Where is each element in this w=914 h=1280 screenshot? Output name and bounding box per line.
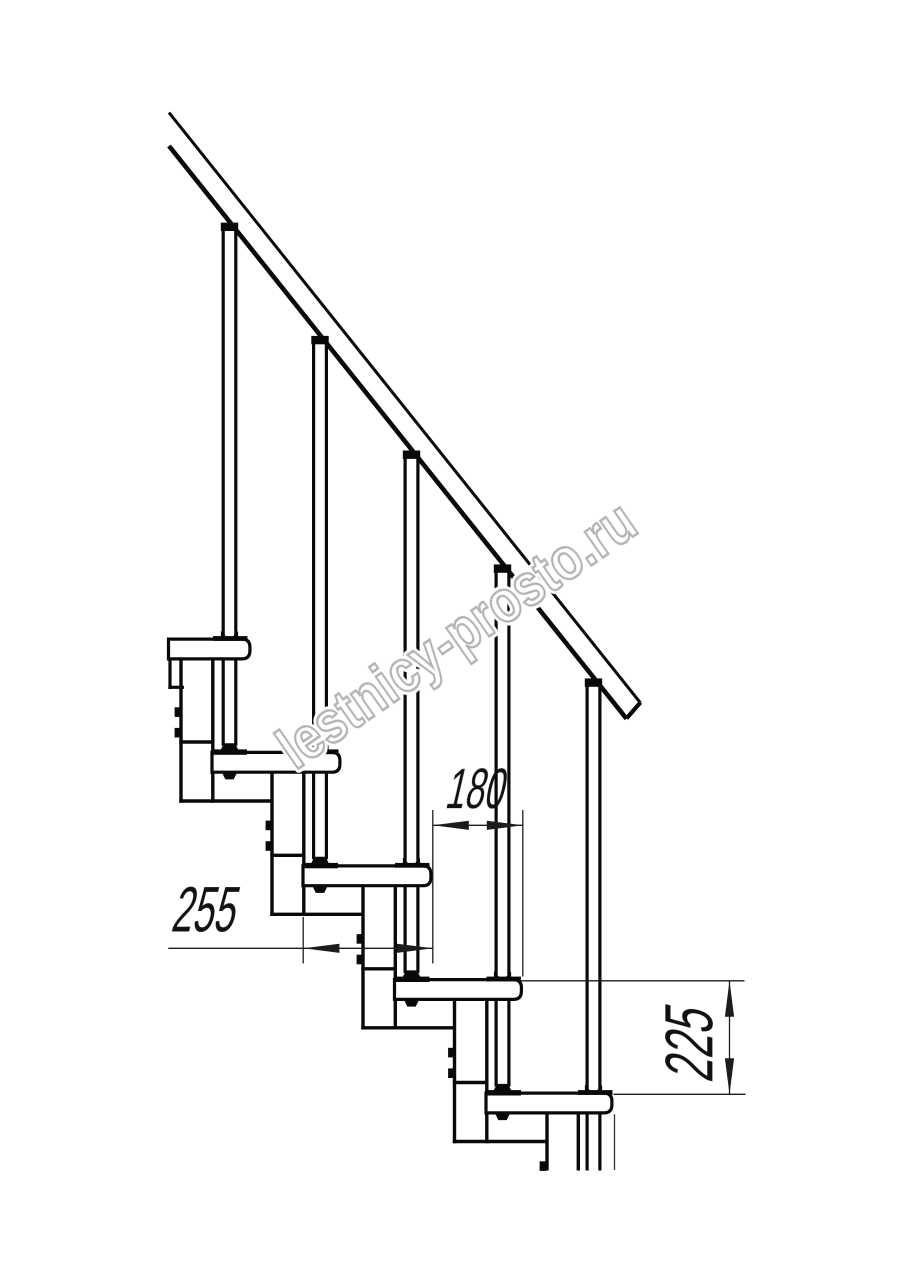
svg-text:180: 180 [441, 758, 514, 821]
svg-text:225: 225 [651, 997, 727, 1087]
svg-text:255: 255 [167, 873, 247, 945]
svg-text:lestnicy-prosto.ru: lestnicy-prosto.ru [265, 488, 648, 782]
